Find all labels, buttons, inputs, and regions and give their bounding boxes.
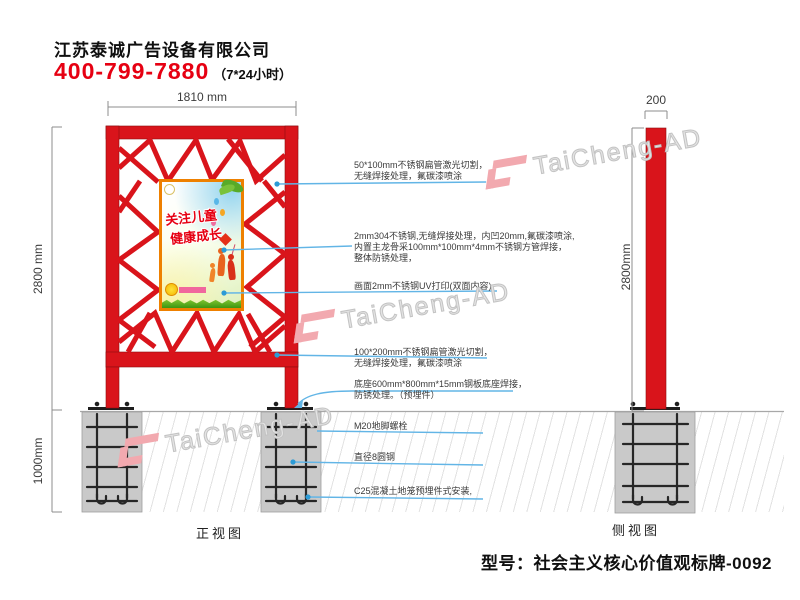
phone-row: 400-799-7880 （7*24小时） [54,58,292,85]
poster-title-line2: 健康成长 [169,223,223,247]
annotation-bottom-tube: 100*200mm不锈钢扁管激光切割， 无缝焊接处理，氟碳漆喷涂 [354,347,493,369]
foundation-front-left [82,412,142,512]
base-plates [88,402,680,410]
poster-bottom-logo [165,283,178,296]
dim-side-width: 200 [634,93,678,107]
model-number: 型号：社会主义核心价值观标牌-0092 [481,549,772,574]
poster-panel: 关注儿童 健康成长 [159,179,244,311]
poster-slogan-ribbon [179,287,206,293]
service-hours: （7*24小时） [213,64,292,83]
foundation-front-right [261,412,321,512]
front-view-label: 正视图 [180,523,260,542]
annotation-panel-steel: 2mm304不锈钢,无缝焊接处理，内凹20mm,氟碳漆喷涂, 内置主龙骨采100… [354,231,575,264]
dim-front-height: 2800 mm [31,231,45,307]
phone-number: 400-799-7880 [54,58,209,85]
figure-adult [227,260,236,281]
figure-child [209,268,216,283]
balloon-icon [220,209,225,216]
figure-adult [217,254,226,276]
annotation-top-tube: 50*100mm不锈钢扁管激光切割， 无缝焊接处理，氟碳漆喷涂 [354,160,488,182]
dim-foundation-depth: 1000mm [31,423,45,499]
foundation-side [615,412,695,513]
spec-sheet: 关注儿童 健康成长 [0,0,800,600]
dim-front-width: 1810 mm [157,90,247,104]
technical-drawing [0,0,800,600]
annotation-anchor-bolt: M20地脚螺栓 [354,421,408,432]
annotation-uv-print: 画面2mm不锈钢UV打印(双面内容) [354,281,492,292]
side-view-post [646,128,666,409]
annotation-round-steel: 直径8圆钢 [354,452,395,463]
side-view-label: 侧视图 [596,520,676,539]
annotation-concrete: C25混凝土地笼预埋件式安装, [354,486,472,497]
poster-top-logo [164,184,175,195]
dim-side-height: 2800mm [619,229,633,305]
annotation-base-plate: 底座600mm*800mm*15mm钢板底座焊接， 防锈处理。（预埋件） [354,379,527,401]
grass-strip [162,299,241,308]
